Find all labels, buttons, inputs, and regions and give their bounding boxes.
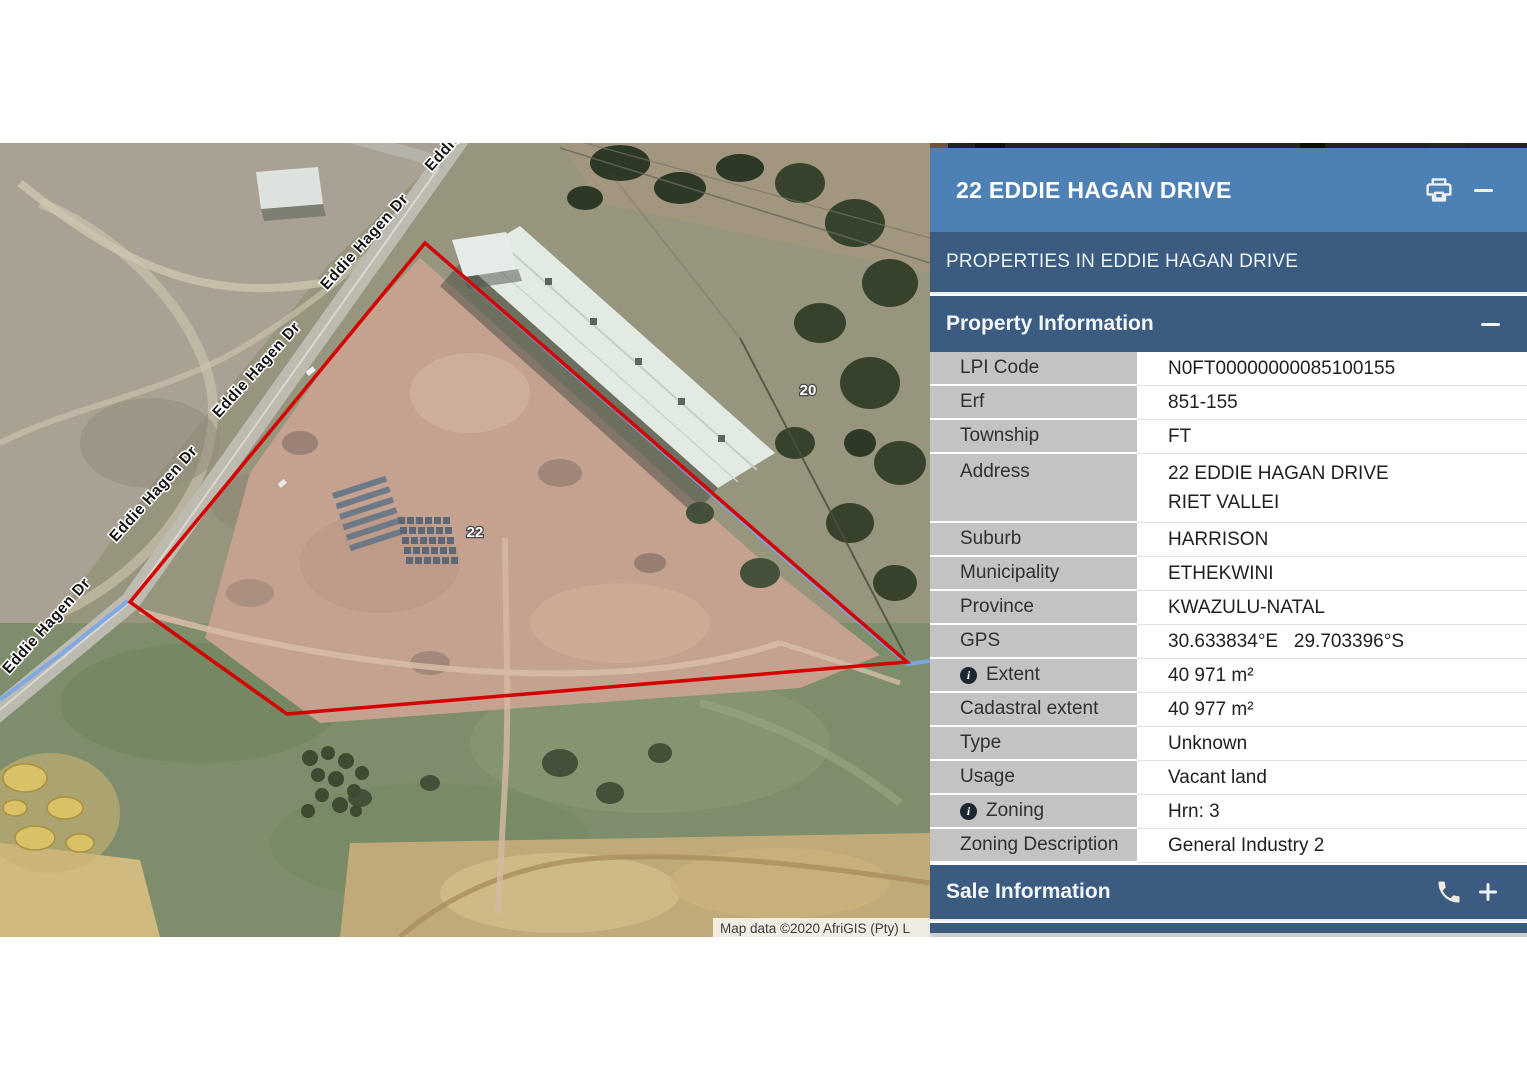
table-row: iProvince KWAZULU-NATAL (930, 591, 1527, 625)
row-label: iZoning Description (930, 829, 1137, 863)
info-icon[interactable]: i (960, 803, 977, 820)
row-value: ETHEKWINI (1137, 557, 1527, 591)
next-section-grey-edge (930, 933, 1527, 937)
table-row: iLPI Code N0FT00000000085100155 (930, 352, 1527, 386)
sale-information-label: Sale Information (946, 880, 1427, 904)
property-info-panel: 22 EDDIE HAGAN DRIVE PROPERTIES IN EDDIE… (930, 148, 1527, 937)
row-label: iMunicipality (930, 557, 1137, 591)
row-label: iGPS (930, 625, 1137, 659)
info-icon[interactable]: i (960, 667, 977, 684)
table-row: iAddress 22 EDDIE HAGAN DRIVERIET VALLEI (930, 454, 1527, 523)
house-number-22: 22 (467, 524, 484, 541)
row-label: iCadastral extent (930, 693, 1137, 727)
row-value: Unknown (1137, 727, 1527, 761)
row-label: iSuburb (930, 523, 1137, 557)
row-value: General Industry 2 (1137, 829, 1527, 863)
row-value: 22 EDDIE HAGAN DRIVERIET VALLEI (1137, 454, 1527, 523)
row-label: iAddress (930, 454, 1137, 523)
row-value: Vacant land (1137, 761, 1527, 795)
next-section-edge (930, 923, 1527, 933)
row-value: 30.633834°E 29.703396°S (1137, 625, 1527, 659)
phone-button[interactable] (1427, 870, 1471, 914)
minus-icon (1481, 323, 1500, 326)
row-value: HARRISON (1137, 523, 1527, 557)
map-attribution: Map data ©2020 AfriGIS (Pty) L (713, 918, 930, 937)
row-label: iExtent (930, 659, 1137, 693)
print-button[interactable] (1417, 168, 1461, 212)
svg-text:Map data ©2020 AfriGIS (Pty) L: Map data ©2020 AfriGIS (Pty) L (720, 921, 911, 936)
panel-title: 22 EDDIE HAGAN DRIVE (956, 177, 1417, 204)
row-label: iLPI Code (930, 352, 1137, 386)
row-label: iZoning (930, 795, 1137, 829)
property-table: iLPI Code N0FT00000000085100155 iErf 851… (930, 352, 1527, 863)
row-label: iProvince (930, 591, 1137, 625)
row-value: FT (1137, 420, 1527, 454)
row-value: N0FT00000000085100155 (1137, 352, 1527, 386)
properties-bar-label: PROPERTIES IN EDDIE HAGAN DRIVE (946, 251, 1298, 273)
table-row: iUsage Vacant land (930, 761, 1527, 795)
app-window: Eddie H Eddie Hagen Dr Eddie Hagen Dr Ed… (0, 0, 1527, 1080)
property-information-label: Property Information (946, 312, 1475, 336)
properties-in-street-bar[interactable]: PROPERTIES IN EDDIE HAGAN DRIVE (930, 232, 1527, 294)
row-value: 40 977 m² (1137, 693, 1527, 727)
row-value: Hrn: 3 (1137, 795, 1527, 829)
table-row: iExtent 40 971 m² (930, 659, 1527, 693)
row-label: iUsage (930, 761, 1137, 795)
table-row: iCadastral extent 40 977 m² (930, 693, 1527, 727)
sale-information-expand-button[interactable] (1471, 870, 1505, 914)
row-value: KWAZULU-NATAL (1137, 591, 1527, 625)
table-row: iTownship FT (930, 420, 1527, 454)
table-row: iZoning Hrn: 3 (930, 795, 1527, 829)
row-label: iType (930, 727, 1137, 761)
row-label: iTownship (930, 420, 1137, 454)
property-information-collapse-button[interactable] (1475, 302, 1505, 346)
property-information-section-header[interactable]: Property Information (930, 296, 1527, 352)
house-number-20: 20 (800, 382, 817, 399)
table-row: iErf 851-155 (930, 386, 1527, 420)
row-label: iErf (930, 386, 1137, 420)
panel-collapse-button[interactable] (1461, 168, 1505, 212)
row-value: 851-155 (1137, 386, 1527, 420)
table-row: iZoning Description General Industry 2 (930, 829, 1527, 863)
plus-icon (1477, 881, 1499, 903)
minus-icon (1474, 189, 1493, 192)
panel-header: 22 EDDIE HAGAN DRIVE (930, 148, 1527, 232)
print-icon (1424, 175, 1454, 205)
sale-information-section-header[interactable]: Sale Information (930, 865, 1527, 921)
table-row: iMunicipality ETHEKWINI (930, 557, 1527, 591)
row-value: 40 971 m² (1137, 659, 1527, 693)
table-row: iGPS 30.633834°E 29.703396°S (930, 625, 1527, 659)
phone-icon (1435, 878, 1463, 906)
table-row: iSuburb HARRISON (930, 523, 1527, 557)
table-row: iType Unknown (930, 727, 1527, 761)
